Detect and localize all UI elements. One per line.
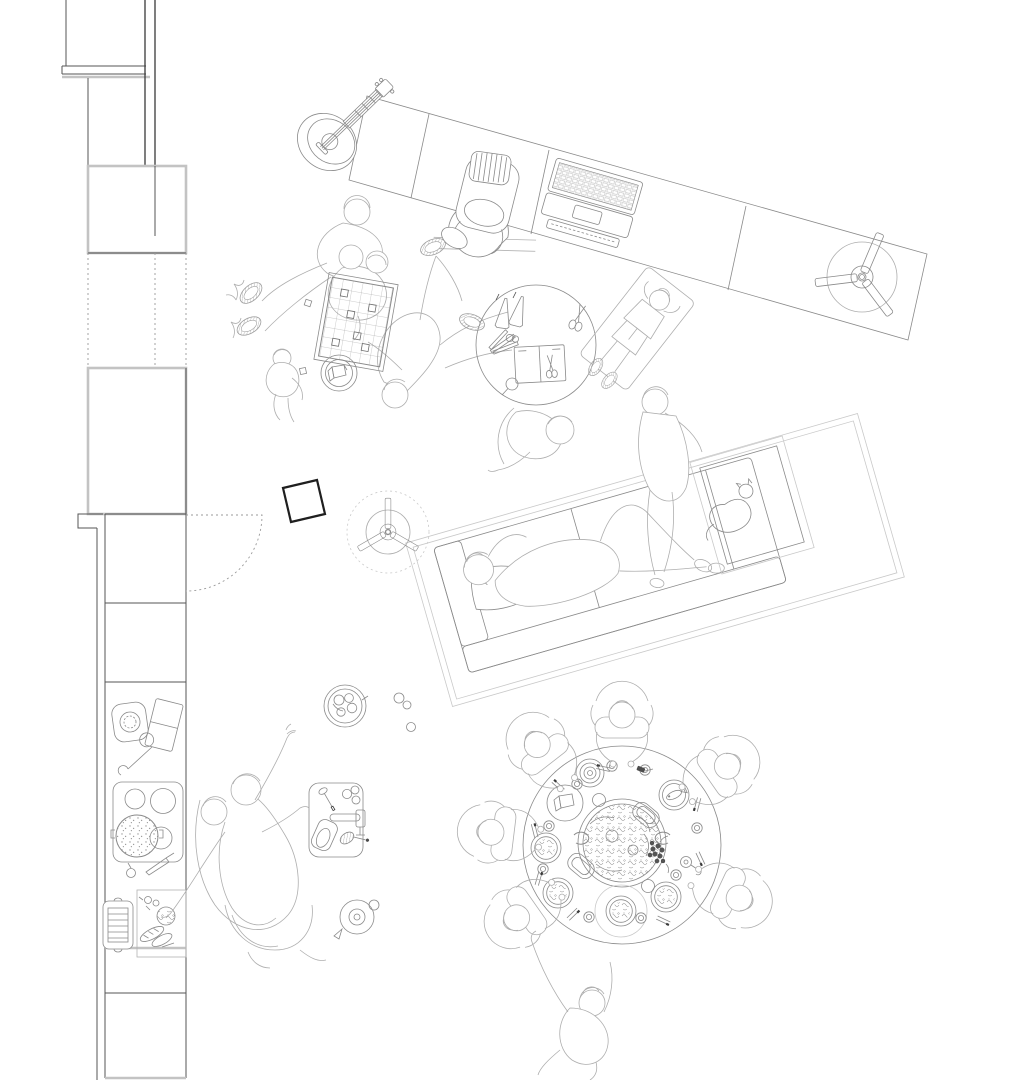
child-figure <box>266 349 302 422</box>
game-board <box>314 273 398 372</box>
guitar <box>286 55 405 182</box>
stove <box>111 782 183 862</box>
snack-bowl-floor <box>321 355 357 391</box>
ceiling-fan-desk-icon <box>811 225 904 318</box>
mat-person <box>572 266 696 401</box>
snack-bowl <box>324 685 416 732</box>
craft-person <box>488 408 574 472</box>
sink-panel <box>309 783 370 857</box>
laptop <box>537 158 643 250</box>
backpack-chair <box>431 142 556 272</box>
diner-bottom <box>531 931 612 1080</box>
floor-plan-drawing <box>0 0 1022 1080</box>
paella-pan <box>574 799 670 887</box>
cat <box>694 478 763 540</box>
person-lying-knee-up <box>368 235 512 408</box>
dining-table <box>454 681 783 1080</box>
sofa-area <box>406 387 905 707</box>
stool-square <box>283 480 325 522</box>
craft-table <box>476 285 596 472</box>
sofa-person <box>457 481 726 642</box>
teapot <box>334 900 379 939</box>
kitchen-counter <box>103 698 186 957</box>
